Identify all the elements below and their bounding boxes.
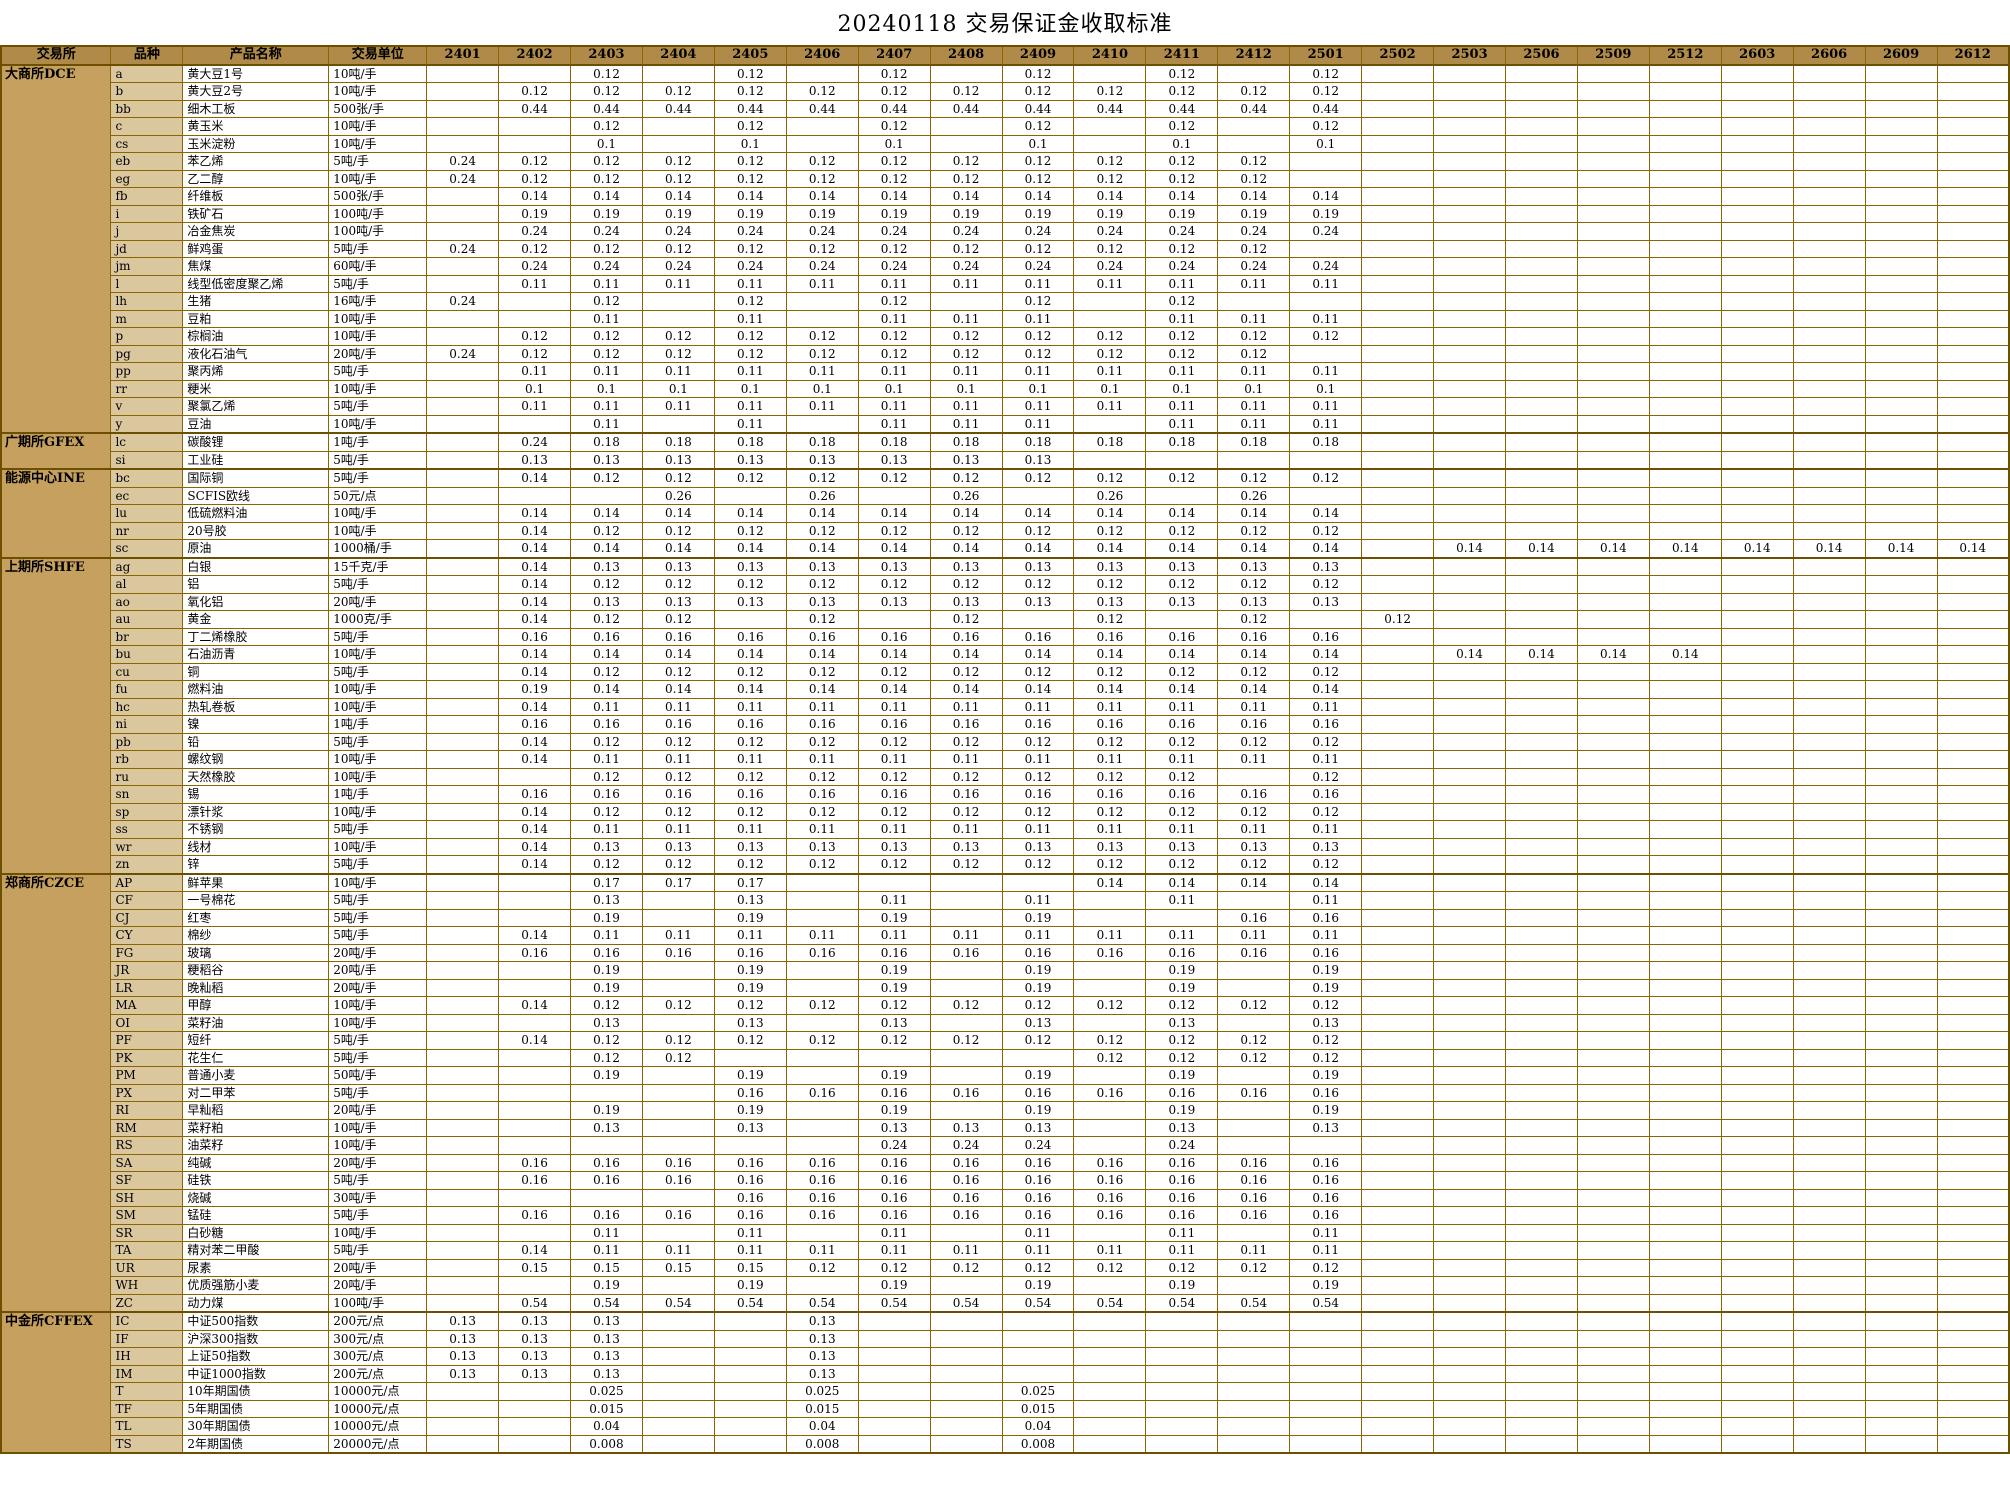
rate-cell-PM-2406[interactable] (786, 1067, 858, 1085)
rate-cell-b-2503[interactable] (1434, 83, 1506, 101)
rate-cell-si-2411[interactable] (1146, 451, 1218, 469)
rate-cell-sc-2408[interactable]: 0.14 (930, 540, 1002, 558)
rate-cell-TS-2409[interactable]: 0.008 (1002, 1435, 1074, 1453)
rate-cell-LR-2509[interactable] (1577, 979, 1649, 997)
rate-cell-AP-2606[interactable] (1793, 874, 1865, 892)
rate-cell-SR-2609[interactable] (1865, 1224, 1937, 1242)
rate-cell-b-2403[interactable]: 0.12 (571, 83, 643, 101)
trade-unit-cell[interactable]: 10吨/手 (329, 803, 427, 821)
rate-cell-UR-2408[interactable]: 0.12 (930, 1259, 1002, 1277)
rate-cell-TS-2503[interactable] (1434, 1435, 1506, 1453)
rate-cell-j-2404[interactable]: 0.24 (642, 223, 714, 241)
rate-cell-ao-2402[interactable]: 0.14 (499, 593, 571, 611)
product-code-cell[interactable]: l (111, 275, 183, 293)
rate-cell-MA-2509[interactable] (1577, 997, 1649, 1015)
rate-cell-b-2409[interactable]: 0.12 (1002, 83, 1074, 101)
rate-cell-jd-2509[interactable] (1577, 240, 1649, 258)
rate-cell-y-2512[interactable] (1649, 415, 1721, 433)
rate-cell-l-2503[interactable] (1434, 275, 1506, 293)
rate-cell-v-2501[interactable]: 0.11 (1290, 398, 1362, 416)
rate-cell-fu-2410[interactable]: 0.14 (1074, 681, 1146, 699)
rate-cell-lh-2512[interactable] (1649, 293, 1721, 311)
rate-cell-SR-2411[interactable]: 0.11 (1146, 1224, 1218, 1242)
rate-cell-bu-2501[interactable]: 0.14 (1290, 646, 1362, 664)
rate-cell-IM-2612[interactable] (1937, 1365, 2009, 1383)
rate-cell-RM-2512[interactable] (1649, 1119, 1721, 1137)
rate-cell-eg-2409[interactable]: 0.12 (1002, 170, 1074, 188)
rate-cell-PF-2411[interactable]: 0.12 (1146, 1032, 1218, 1050)
rate-cell-WH-2609[interactable] (1865, 1277, 1937, 1295)
rate-cell-fb-2408[interactable]: 0.14 (930, 188, 1002, 206)
rate-cell-OI-2410[interactable] (1074, 1014, 1146, 1032)
rate-cell-a-2512[interactable] (1649, 65, 1721, 83)
rate-cell-ec-2408[interactable]: 0.26 (930, 487, 1002, 505)
rate-cell-T-2412[interactable] (1218, 1383, 1290, 1401)
rate-cell-ZC-2411[interactable]: 0.54 (1146, 1294, 1218, 1312)
rate-cell-RS-2512[interactable] (1649, 1137, 1721, 1155)
rate-cell-FG-2402[interactable]: 0.16 (499, 944, 571, 962)
product-code-cell[interactable]: eb (111, 153, 183, 171)
rate-cell-TF-2612[interactable] (1937, 1400, 2009, 1418)
trade-unit-cell[interactable]: 10吨/手 (329, 310, 427, 328)
rate-cell-cu-2502[interactable] (1362, 663, 1434, 681)
product-code-cell[interactable]: hc (111, 698, 183, 716)
rate-cell-lc-2512[interactable] (1649, 433, 1721, 451)
rate-cell-CF-2506[interactable] (1506, 892, 1578, 910)
rate-cell-lu-2412[interactable]: 0.14 (1218, 505, 1290, 523)
rate-cell-c-2506[interactable] (1506, 118, 1578, 136)
product-code-cell[interactable]: p (111, 328, 183, 346)
rate-cell-l-2603[interactable] (1721, 275, 1793, 293)
rate-cell-bb-2609[interactable] (1865, 100, 1937, 118)
rate-cell-i-2409[interactable]: 0.19 (1002, 205, 1074, 223)
product-name-cell[interactable]: 原油 (183, 540, 329, 558)
rate-cell-bc-2609[interactable] (1865, 469, 1937, 487)
rate-cell-nr-2408[interactable]: 0.12 (930, 522, 1002, 540)
rate-cell-br-2407[interactable]: 0.16 (858, 628, 930, 646)
rate-cell-ao-2401[interactable] (427, 593, 499, 611)
rate-cell-PX-2502[interactable] (1362, 1084, 1434, 1102)
rate-cell-TL-2609[interactable] (1865, 1418, 1937, 1436)
rate-cell-l-2403[interactable]: 0.11 (571, 275, 643, 293)
rate-cell-TS-2603[interactable] (1721, 1435, 1793, 1453)
rate-cell-hc-2612[interactable] (1937, 698, 2009, 716)
rate-cell-TS-2512[interactable] (1649, 1435, 1721, 1453)
rate-cell-b-2408[interactable]: 0.12 (930, 83, 1002, 101)
rate-cell-nr-2401[interactable] (427, 522, 499, 540)
rate-cell-eb-2502[interactable] (1362, 153, 1434, 171)
rate-cell-p-2409[interactable]: 0.12 (1002, 328, 1074, 346)
rate-cell-bc-2502[interactable] (1362, 469, 1434, 487)
rate-cell-UR-2406[interactable]: 0.12 (786, 1259, 858, 1277)
month-header-2403[interactable]: 2403 (571, 46, 643, 65)
rate-cell-UR-2501[interactable]: 0.12 (1290, 1259, 1362, 1277)
product-name-cell[interactable]: 氧化铝 (183, 593, 329, 611)
rate-cell-CY-2409[interactable]: 0.11 (1002, 927, 1074, 945)
rate-cell-TL-2407[interactable] (858, 1418, 930, 1436)
rate-cell-CY-2606[interactable] (1793, 927, 1865, 945)
rate-cell-FG-2409[interactable]: 0.16 (1002, 944, 1074, 962)
rate-cell-CJ-2407[interactable]: 0.19 (858, 909, 930, 927)
rate-cell-TF-2509[interactable] (1577, 1400, 1649, 1418)
rate-cell-SR-2406[interactable] (786, 1224, 858, 1242)
rate-cell-rb-2506[interactable] (1506, 751, 1578, 769)
rate-cell-au-2408[interactable]: 0.12 (930, 611, 1002, 629)
rate-cell-br-2409[interactable]: 0.16 (1002, 628, 1074, 646)
rate-cell-lu-2410[interactable]: 0.14 (1074, 505, 1146, 523)
rate-cell-al-2503[interactable] (1434, 576, 1506, 594)
rate-cell-cs-2410[interactable] (1074, 135, 1146, 153)
rate-cell-SR-2403[interactable]: 0.11 (571, 1224, 643, 1242)
rate-cell-PM-2404[interactable] (642, 1067, 714, 1085)
rate-cell-pb-2410[interactable]: 0.12 (1074, 733, 1146, 751)
rate-cell-SH-2609[interactable] (1865, 1189, 1937, 1207)
rate-cell-CJ-2502[interactable] (1362, 909, 1434, 927)
rate-cell-pp-2603[interactable] (1721, 363, 1793, 381)
rate-cell-IH-2404[interactable] (642, 1348, 714, 1366)
rate-cell-c-2410[interactable] (1074, 118, 1146, 136)
rate-cell-ni-2405[interactable]: 0.16 (714, 716, 786, 734)
rate-cell-AP-2404[interactable]: 0.17 (642, 874, 714, 892)
rate-cell-sc-2609[interactable]: 0.14 (1865, 540, 1937, 558)
rate-cell-CF-2411[interactable]: 0.11 (1146, 892, 1218, 910)
rate-cell-lu-2411[interactable]: 0.14 (1146, 505, 1218, 523)
rate-cell-ag-2405[interactable]: 0.13 (714, 558, 786, 576)
trade-unit-cell[interactable]: 5吨/手 (329, 628, 427, 646)
month-header-2509[interactable]: 2509 (1577, 46, 1649, 65)
rate-cell-l-2409[interactable]: 0.11 (1002, 275, 1074, 293)
rate-cell-b-2609[interactable] (1865, 83, 1937, 101)
rate-cell-zn-2407[interactable]: 0.12 (858, 856, 930, 874)
rate-cell-b-2404[interactable]: 0.12 (642, 83, 714, 101)
rate-cell-ni-2403[interactable]: 0.16 (571, 716, 643, 734)
rate-cell-JR-2401[interactable] (427, 962, 499, 980)
rate-cell-i-2506[interactable] (1506, 205, 1578, 223)
rate-cell-SM-2501[interactable]: 0.16 (1290, 1207, 1362, 1225)
rate-cell-a-2405[interactable]: 0.12 (714, 65, 786, 83)
rate-cell-eb-2403[interactable]: 0.12 (571, 153, 643, 171)
rate-cell-jm-2402[interactable]: 0.24 (499, 258, 571, 276)
rate-cell-RM-2501[interactable]: 0.13 (1290, 1119, 1362, 1137)
rate-cell-lh-2502[interactable] (1362, 293, 1434, 311)
rate-cell-OI-2408[interactable] (930, 1014, 1002, 1032)
rate-cell-ec-2412[interactable]: 0.26 (1218, 487, 1290, 505)
rate-cell-jm-2403[interactable]: 0.24 (571, 258, 643, 276)
rate-cell-si-2512[interactable] (1649, 451, 1721, 469)
rate-cell-TS-2412[interactable] (1218, 1435, 1290, 1453)
rate-cell-eb-2612[interactable] (1937, 153, 2009, 171)
rate-cell-cs-2403[interactable]: 0.1 (571, 135, 643, 153)
rate-cell-jd-2411[interactable]: 0.12 (1146, 240, 1218, 258)
rate-cell-IF-2612[interactable] (1937, 1330, 2009, 1348)
rate-cell-RS-2406[interactable] (786, 1137, 858, 1155)
rate-cell-AP-2407[interactable] (858, 874, 930, 892)
exchange-cell[interactable]: 中金所CFFEX (1, 1312, 111, 1453)
rate-cell-lh-2410[interactable] (1074, 293, 1146, 311)
rate-cell-IC-2506[interactable] (1506, 1312, 1578, 1330)
rate-cell-RM-2407[interactable]: 0.13 (858, 1119, 930, 1137)
rate-cell-nr-2609[interactable] (1865, 522, 1937, 540)
product-code-cell[interactable]: ni (111, 716, 183, 734)
rate-cell-CJ-2612[interactable] (1937, 909, 2009, 927)
rate-cell-l-2606[interactable] (1793, 275, 1865, 293)
rate-cell-fb-2503[interactable] (1434, 188, 1506, 206)
rate-cell-RS-2502[interactable] (1362, 1137, 1434, 1155)
rate-cell-PK-2512[interactable] (1649, 1049, 1721, 1067)
rate-cell-rb-2603[interactable] (1721, 751, 1793, 769)
rate-cell-CJ-2409[interactable]: 0.19 (1002, 909, 1074, 927)
rate-cell-rb-2406[interactable]: 0.11 (786, 751, 858, 769)
rate-cell-rr-2406[interactable]: 0.1 (786, 380, 858, 398)
rate-cell-CJ-2405[interactable]: 0.19 (714, 909, 786, 927)
rate-cell-JR-2404[interactable] (642, 962, 714, 980)
rate-cell-bu-2509[interactable]: 0.14 (1577, 646, 1649, 664)
rate-cell-si-2407[interactable]: 0.13 (858, 451, 930, 469)
rate-cell-hc-2401[interactable] (427, 698, 499, 716)
rate-cell-bu-2406[interactable]: 0.14 (786, 646, 858, 664)
rate-cell-PX-2506[interactable] (1506, 1084, 1578, 1102)
rate-cell-v-2405[interactable]: 0.11 (714, 398, 786, 416)
rate-cell-PM-2612[interactable] (1937, 1067, 2009, 1085)
rate-cell-PX-2404[interactable] (642, 1084, 714, 1102)
rate-cell-SM-2404[interactable]: 0.16 (642, 1207, 714, 1225)
rate-cell-au-2412[interactable]: 0.12 (1218, 611, 1290, 629)
rate-cell-jd-2503[interactable] (1434, 240, 1506, 258)
rate-cell-PM-2512[interactable] (1649, 1067, 1721, 1085)
rate-cell-SA-2509[interactable] (1577, 1154, 1649, 1172)
rate-cell-j-2512[interactable] (1649, 223, 1721, 241)
rate-cell-m-2410[interactable] (1074, 310, 1146, 328)
rate-cell-eg-2506[interactable] (1506, 170, 1578, 188)
rate-cell-br-2503[interactable] (1434, 628, 1506, 646)
rate-cell-TL-2408[interactable] (930, 1418, 1002, 1436)
product-name-cell[interactable]: 白砂糖 (183, 1224, 329, 1242)
rate-cell-cs-2606[interactable] (1793, 135, 1865, 153)
rate-cell-TS-2401[interactable] (427, 1435, 499, 1453)
rate-cell-CY-2410[interactable]: 0.11 (1074, 927, 1146, 945)
rate-cell-hc-2606[interactable] (1793, 698, 1865, 716)
rate-cell-IC-2502[interactable] (1362, 1312, 1434, 1330)
rate-cell-eg-2407[interactable]: 0.12 (858, 170, 930, 188)
rate-cell-bc-2405[interactable]: 0.12 (714, 469, 786, 487)
rate-cell-cu-2412[interactable]: 0.12 (1218, 663, 1290, 681)
rate-cell-a-2603[interactable] (1721, 65, 1793, 83)
rate-cell-UR-2402[interactable]: 0.15 (499, 1259, 571, 1277)
rate-cell-bc-2506[interactable] (1506, 469, 1578, 487)
product-code-cell[interactable]: nr (111, 522, 183, 540)
rate-cell-jd-2506[interactable] (1506, 240, 1578, 258)
rate-cell-l-2410[interactable]: 0.11 (1074, 275, 1146, 293)
rate-cell-sp-2512[interactable] (1649, 803, 1721, 821)
rate-cell-SR-2405[interactable]: 0.11 (714, 1224, 786, 1242)
rate-cell-pb-2404[interactable]: 0.12 (642, 733, 714, 751)
rate-cell-ru-2503[interactable] (1434, 768, 1506, 786)
trade-unit-cell[interactable]: 10吨/手 (329, 328, 427, 346)
rate-cell-RS-2501[interactable] (1290, 1137, 1362, 1155)
rate-cell-TA-2409[interactable]: 0.11 (1002, 1242, 1074, 1260)
rate-cell-si-2509[interactable] (1577, 451, 1649, 469)
rate-cell-jd-2409[interactable]: 0.12 (1002, 240, 1074, 258)
rate-cell-PX-2609[interactable] (1865, 1084, 1937, 1102)
rate-cell-IF-2512[interactable] (1649, 1330, 1721, 1348)
rate-cell-pp-2412[interactable]: 0.11 (1218, 363, 1290, 381)
rate-cell-ec-2509[interactable] (1577, 487, 1649, 505)
rate-cell-zn-2410[interactable]: 0.12 (1074, 856, 1146, 874)
rate-cell-TL-2502[interactable] (1362, 1418, 1434, 1436)
rate-cell-ag-2506[interactable] (1506, 558, 1578, 576)
rate-cell-ru-2408[interactable]: 0.12 (930, 768, 1002, 786)
rate-cell-eb-2509[interactable] (1577, 153, 1649, 171)
rate-cell-UR-2401[interactable] (427, 1259, 499, 1277)
rate-cell-b-2411[interactable]: 0.12 (1146, 83, 1218, 101)
rate-cell-sp-2606[interactable] (1793, 803, 1865, 821)
rate-cell-jd-2412[interactable]: 0.12 (1218, 240, 1290, 258)
rate-cell-y-2411[interactable]: 0.11 (1146, 415, 1218, 433)
rate-cell-lc-2509[interactable] (1577, 433, 1649, 451)
product-name-cell[interactable]: 甲醇 (183, 997, 329, 1015)
product-name-cell[interactable]: 对二甲苯 (183, 1084, 329, 1102)
rate-cell-cu-2402[interactable]: 0.14 (499, 663, 571, 681)
rate-cell-ec-2506[interactable] (1506, 487, 1578, 505)
rate-cell-v-2404[interactable]: 0.11 (642, 398, 714, 416)
rate-cell-v-2402[interactable]: 0.11 (499, 398, 571, 416)
rate-cell-PF-2501[interactable]: 0.12 (1290, 1032, 1362, 1050)
rate-cell-au-2606[interactable] (1793, 611, 1865, 629)
rate-cell-rb-2609[interactable] (1865, 751, 1937, 769)
rate-cell-RM-2612[interactable] (1937, 1119, 2009, 1137)
rate-cell-l-2609[interactable] (1865, 275, 1937, 293)
rate-cell-SA-2506[interactable] (1506, 1154, 1578, 1172)
rate-cell-SF-2401[interactable] (427, 1172, 499, 1190)
rate-cell-rb-2412[interactable]: 0.11 (1218, 751, 1290, 769)
product-name-cell[interactable]: 镍 (183, 716, 329, 734)
rate-cell-br-2603[interactable] (1721, 628, 1793, 646)
rate-cell-SA-2408[interactable]: 0.16 (930, 1154, 1002, 1172)
rate-cell-bb-2406[interactable]: 0.44 (786, 100, 858, 118)
rate-cell-PM-2411[interactable]: 0.19 (1146, 1067, 1218, 1085)
rate-cell-ru-2407[interactable]: 0.12 (858, 768, 930, 786)
rate-cell-ao-2603[interactable] (1721, 593, 1793, 611)
rate-cell-ag-2603[interactable] (1721, 558, 1793, 576)
rate-cell-AP-2506[interactable] (1506, 874, 1578, 892)
month-header-2404[interactable]: 2404 (642, 46, 714, 65)
rate-cell-OI-2509[interactable] (1577, 1014, 1649, 1032)
rate-cell-pp-2609[interactable] (1865, 363, 1937, 381)
rate-cell-PX-2412[interactable]: 0.16 (1218, 1084, 1290, 1102)
rate-cell-cs-2512[interactable] (1649, 135, 1721, 153)
rate-cell-MA-2412[interactable]: 0.12 (1218, 997, 1290, 1015)
rate-cell-j-2409[interactable]: 0.24 (1002, 223, 1074, 241)
rate-cell-p-2406[interactable]: 0.12 (786, 328, 858, 346)
trade-unit-cell[interactable]: 5吨/手 (329, 1049, 427, 1067)
rate-cell-CF-2404[interactable] (642, 892, 714, 910)
rate-cell-y-2612[interactable] (1937, 415, 2009, 433)
rate-cell-IC-2409[interactable] (1002, 1312, 1074, 1330)
rate-cell-sn-2502[interactable] (1362, 786, 1434, 804)
product-name-cell[interactable]: 锰硅 (183, 1207, 329, 1225)
rate-cell-IF-2509[interactable] (1577, 1330, 1649, 1348)
rate-cell-al-2401[interactable] (427, 576, 499, 594)
rate-cell-ZC-2612[interactable] (1937, 1294, 2009, 1312)
rate-cell-lc-2405[interactable]: 0.18 (714, 433, 786, 451)
product-name-cell[interactable]: 液化石油气 (183, 345, 329, 363)
rate-cell-sc-2407[interactable]: 0.14 (858, 540, 930, 558)
rate-cell-j-2509[interactable] (1577, 223, 1649, 241)
rate-cell-ss-2405[interactable]: 0.11 (714, 821, 786, 839)
rate-cell-T-2609[interactable] (1865, 1383, 1937, 1401)
rate-cell-pg-2509[interactable] (1577, 345, 1649, 363)
product-name-cell[interactable]: 黄大豆1号 (183, 65, 329, 83)
rate-cell-JR-2609[interactable] (1865, 962, 1937, 980)
rate-cell-rr-2409[interactable]: 0.1 (1002, 380, 1074, 398)
product-name-cell[interactable]: 红枣 (183, 909, 329, 927)
rate-cell-MA-2410[interactable]: 0.12 (1074, 997, 1146, 1015)
rate-cell-MA-2401[interactable] (427, 997, 499, 1015)
rate-cell-jm-2407[interactable]: 0.24 (858, 258, 930, 276)
rate-cell-br-2506[interactable] (1506, 628, 1578, 646)
product-code-cell[interactable]: OI (111, 1014, 183, 1032)
rate-cell-PK-2503[interactable] (1434, 1049, 1506, 1067)
rate-cell-pp-2506[interactable] (1506, 363, 1578, 381)
product-name-cell[interactable]: 10年期国债 (183, 1383, 329, 1401)
rate-cell-ec-2403[interactable] (571, 487, 643, 505)
rate-cell-FG-2501[interactable]: 0.16 (1290, 944, 1362, 962)
rate-cell-JR-2603[interactable] (1721, 962, 1793, 980)
rate-cell-UR-2603[interactable] (1721, 1259, 1793, 1277)
rate-cell-pb-2401[interactable] (427, 733, 499, 751)
rate-cell-OI-2606[interactable] (1793, 1014, 1865, 1032)
rate-cell-l-2408[interactable]: 0.11 (930, 275, 1002, 293)
trade-unit-cell[interactable]: 20吨/手 (329, 944, 427, 962)
rate-cell-pp-2502[interactable] (1362, 363, 1434, 381)
product-name-cell[interactable]: 工业硅 (183, 451, 329, 469)
rate-cell-i-2404[interactable]: 0.19 (642, 205, 714, 223)
rate-cell-ni-2612[interactable] (1937, 716, 2009, 734)
rate-cell-sc-2405[interactable]: 0.14 (714, 540, 786, 558)
rate-cell-PX-2401[interactable] (427, 1084, 499, 1102)
rate-cell-m-2506[interactable] (1506, 310, 1578, 328)
rate-cell-lh-2404[interactable] (642, 293, 714, 311)
trade-unit-cell[interactable]: 1吨/手 (329, 433, 427, 451)
product-code-cell[interactable]: MA (111, 997, 183, 1015)
rate-cell-SF-2406[interactable]: 0.16 (786, 1172, 858, 1190)
rate-cell-TF-2606[interactable] (1793, 1400, 1865, 1418)
rate-cell-IC-2403[interactable]: 0.13 (571, 1312, 643, 1330)
rate-cell-IH-2411[interactable] (1146, 1348, 1218, 1366)
rate-cell-IM-2501[interactable] (1290, 1365, 1362, 1383)
rate-cell-OI-2603[interactable] (1721, 1014, 1793, 1032)
rate-cell-au-2404[interactable]: 0.12 (642, 611, 714, 629)
rate-cell-UR-2512[interactable] (1649, 1259, 1721, 1277)
rate-cell-fb-2501[interactable]: 0.14 (1290, 188, 1362, 206)
rate-cell-pg-2603[interactable] (1721, 345, 1793, 363)
rate-cell-lu-2501[interactable]: 0.14 (1290, 505, 1362, 523)
month-header-2402[interactable]: 2402 (499, 46, 571, 65)
rate-cell-eg-2502[interactable] (1362, 170, 1434, 188)
rate-cell-SM-2407[interactable]: 0.16 (858, 1207, 930, 1225)
trade-unit-cell[interactable]: 20吨/手 (329, 345, 427, 363)
rate-cell-FG-2503[interactable] (1434, 944, 1506, 962)
rate-cell-rb-2410[interactable]: 0.11 (1074, 751, 1146, 769)
rate-cell-jm-2509[interactable] (1577, 258, 1649, 276)
rate-cell-TL-2606[interactable] (1793, 1418, 1865, 1436)
rate-cell-pb-2502[interactable] (1362, 733, 1434, 751)
rate-cell-b-2501[interactable]: 0.12 (1290, 83, 1362, 101)
rate-cell-IM-2407[interactable] (858, 1365, 930, 1383)
rate-cell-c-2606[interactable] (1793, 118, 1865, 136)
product-code-cell[interactable]: FG (111, 944, 183, 962)
rate-cell-LR-2402[interactable] (499, 979, 571, 997)
